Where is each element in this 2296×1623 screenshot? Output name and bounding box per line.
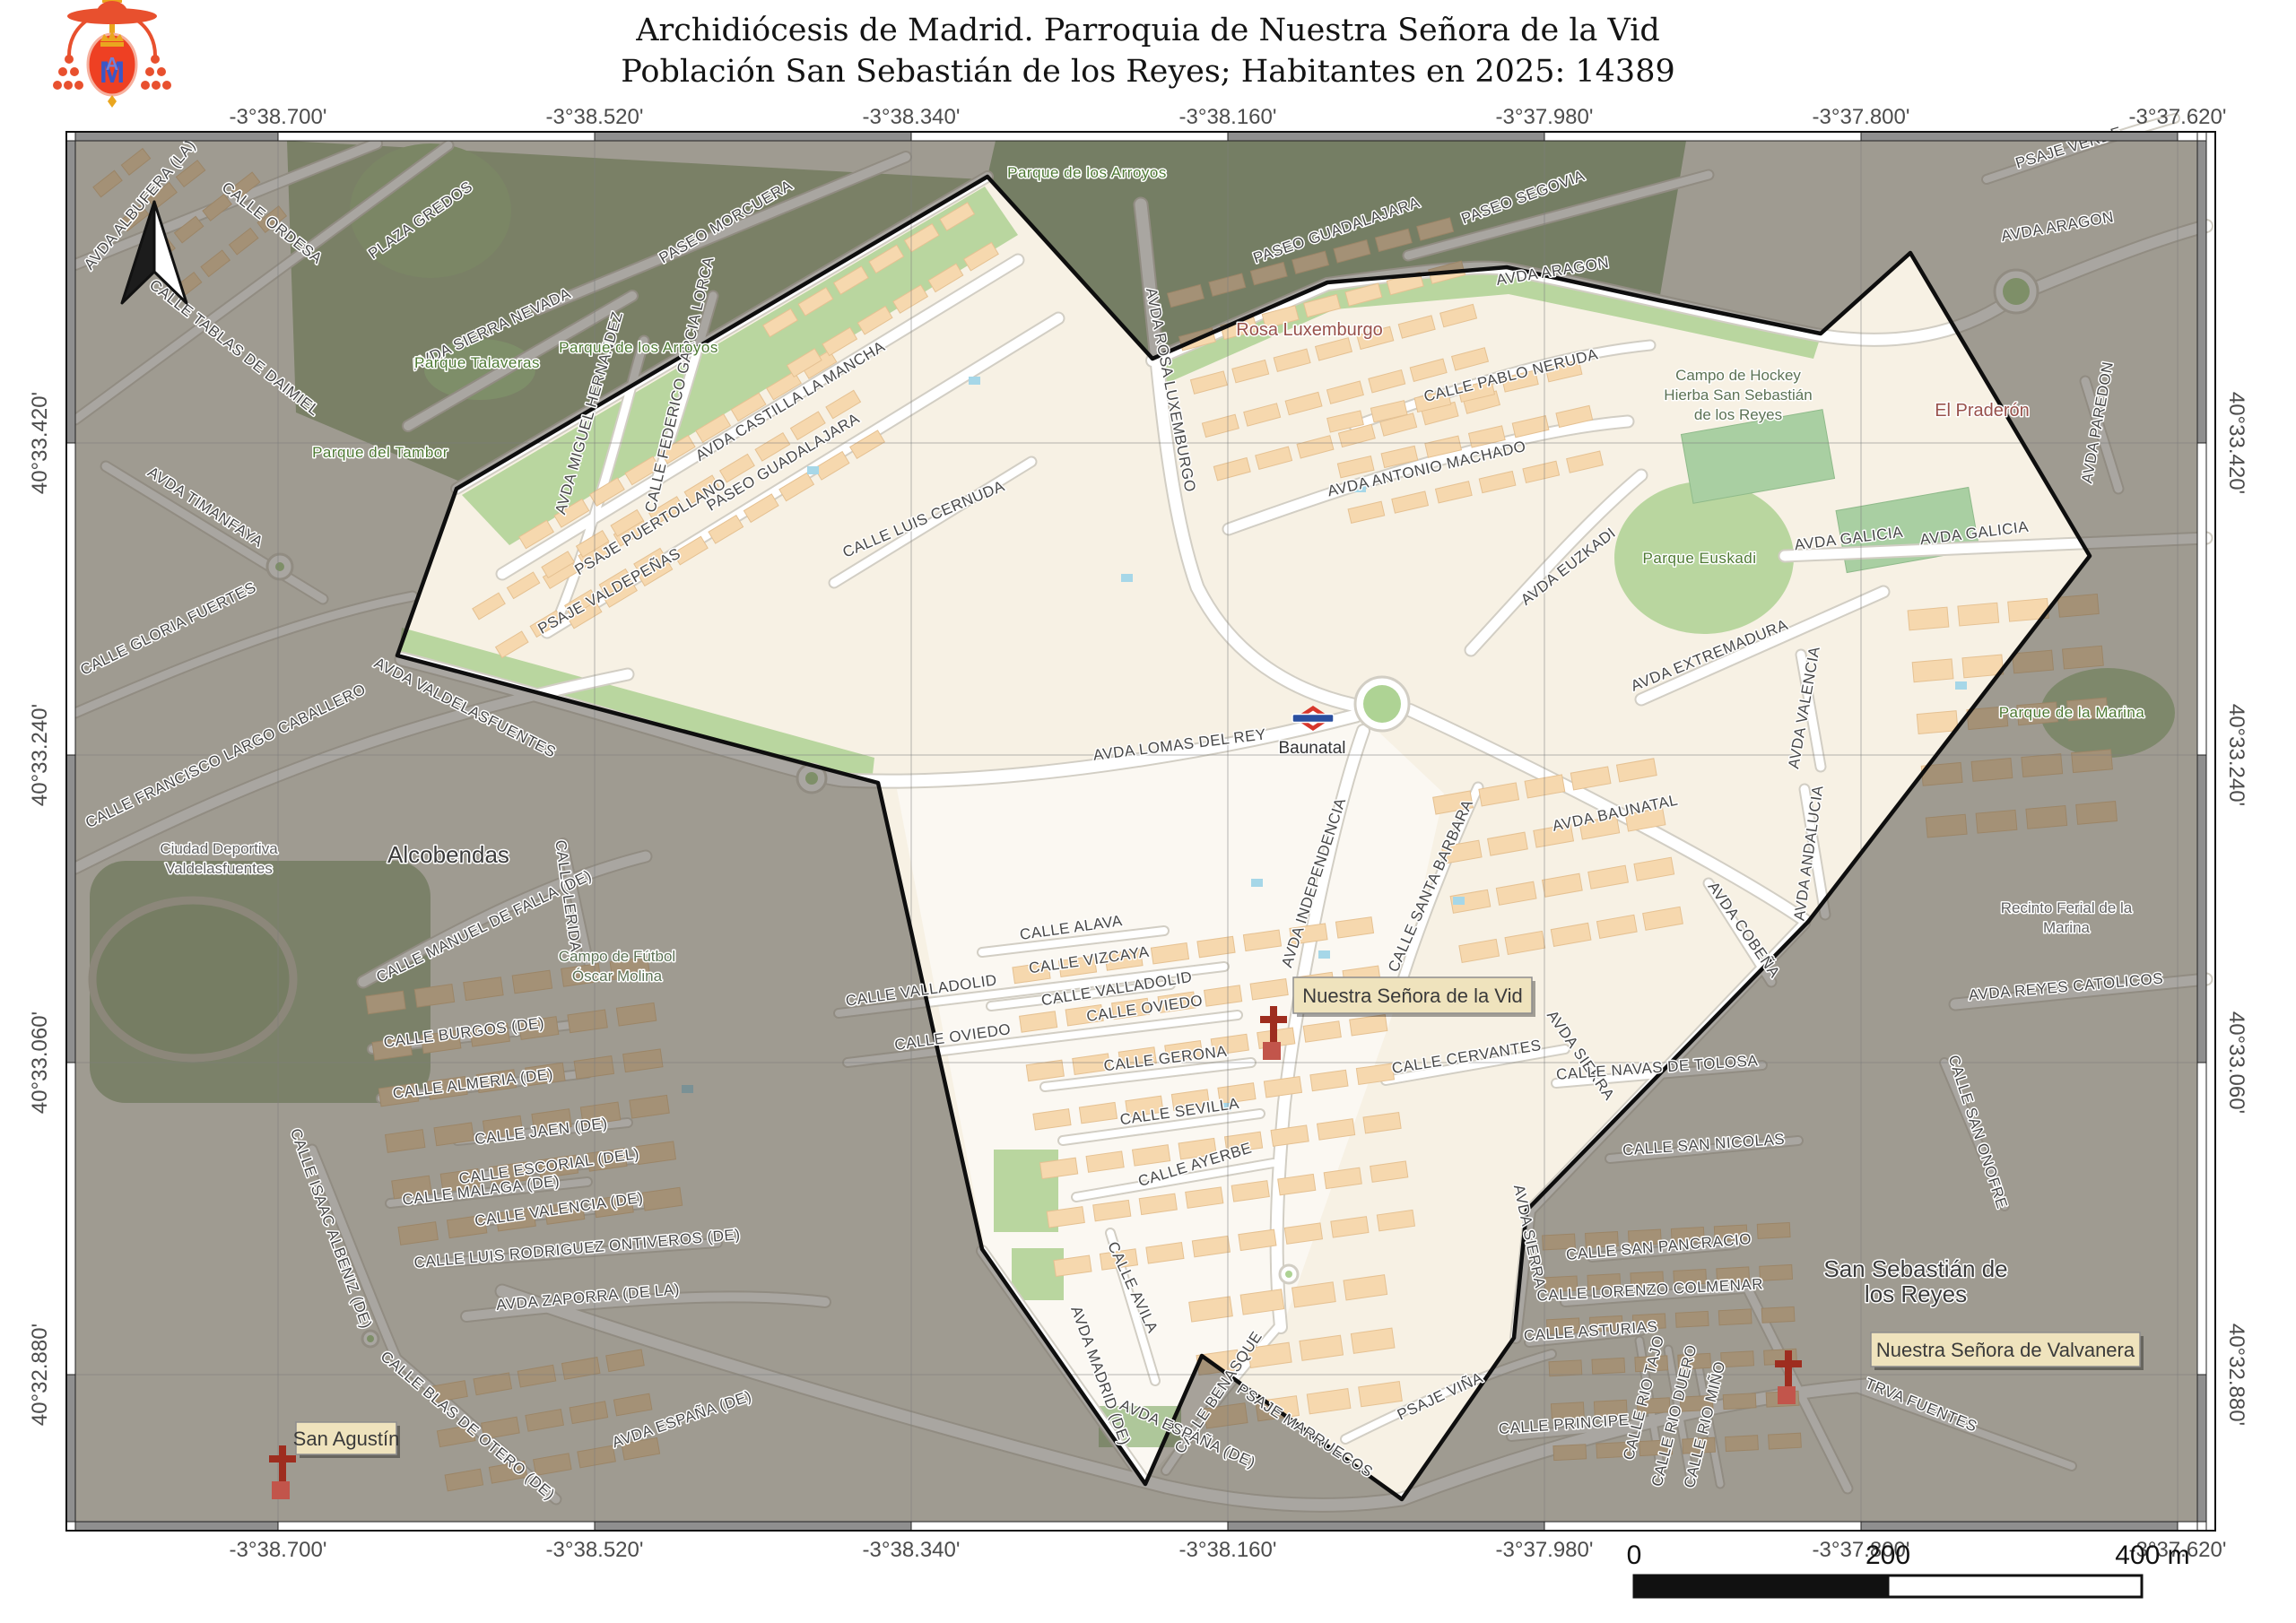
city-label: Alcobendas [387, 841, 509, 868]
church-label: Nuestra Señora de la Vid [1302, 985, 1522, 1007]
sport-label: Hierba San Sebastián [1664, 386, 1812, 404]
svg-text:A: A [106, 55, 118, 74]
park-label: Parque de los Arroyos [1007, 164, 1167, 181]
coordinate-label: 40°32.880' [28, 1324, 52, 1426]
coordinate-label: -3°38.340' [863, 105, 961, 129]
coordinate-label: -3°37.980' [1496, 1538, 1594, 1562]
coordinate-label: -3°38.160' [1179, 105, 1277, 129]
archdiocese-logo: M A [53, 0, 171, 108]
coordinate-label: -3°38.520' [546, 1538, 644, 1562]
metro-station-label: Baunatal [1278, 739, 1345, 758]
place-label: Rosa Luxemburgo [1236, 320, 1382, 340]
coordinate-label: 40°33.060' [2224, 1011, 2248, 1114]
coordinate-label: -3°37.800' [1813, 105, 1910, 129]
coordinate-label: 40°33.240' [28, 704, 52, 806]
coordinate-label: -3°38.340' [863, 1538, 961, 1562]
park-label: Parque de la Marina [1999, 704, 2145, 721]
map-layout-page: Archidiócesis de Madrid. Parroquia de Nu… [0, 0, 2296, 1623]
church-label: Nuestra Señora de Valvanera [1876, 1339, 2135, 1361]
coordinate-label: 40°33.060' [28, 1011, 52, 1114]
parish-map-canvas: AVDA ALBUFERA (LA)CALLE ORDESAPLAZA GRED… [0, 0, 2296, 1623]
scalebar-label: 400 m [2115, 1541, 2189, 1570]
sport-label: Óscar Molina [572, 968, 663, 985]
park-label: Parque de los Arroyos [559, 339, 718, 356]
scale-bar: 0200400 m [1627, 1541, 2190, 1597]
church-label: San Agustín [293, 1428, 400, 1450]
coordinate-label: -3°38.700' [230, 105, 327, 129]
area-label: Marina [2043, 919, 2091, 936]
coordinate-label: 40°33.420' [28, 392, 52, 494]
sport-label: de los Reyes [1694, 406, 1782, 423]
scalebar-label: 200 [1865, 1541, 1910, 1570]
coordinate-label: 40°32.880' [2224, 1324, 2248, 1426]
park-label: Parque Euskadi [1642, 550, 1756, 567]
area-label: Ciudad Deportiva [160, 840, 278, 857]
coordinate-label: -3°37.620' [2129, 105, 2227, 129]
coordinate-label: -3°38.700' [230, 1538, 327, 1562]
sport-label: Campo de Fútbol [559, 948, 675, 965]
area-label: Recinto Ferial de la [2001, 899, 2133, 916]
city-label: San Sebastián de [1823, 1255, 2007, 1282]
coordinate-label: 40°33.240' [2224, 704, 2248, 806]
coordinate-label: -3°37.980' [1496, 105, 1594, 129]
park-label: Parque Talaveras [414, 354, 540, 371]
city-label: los Reyes [1865, 1280, 1967, 1307]
scalebar-label: 0 [1627, 1541, 1642, 1570]
coordinate-label: 40°33.420' [2224, 392, 2248, 494]
park-label: Parque del Tambor [312, 444, 448, 461]
area-label: Valdelasfuentes [165, 860, 273, 877]
coordinate-label: -3°38.520' [546, 105, 644, 129]
sport-label: Campo de Hockey [1675, 367, 1801, 384]
coordinate-label: -3°38.160' [1179, 1538, 1277, 1562]
place-label: El Praderón [1935, 401, 2030, 421]
